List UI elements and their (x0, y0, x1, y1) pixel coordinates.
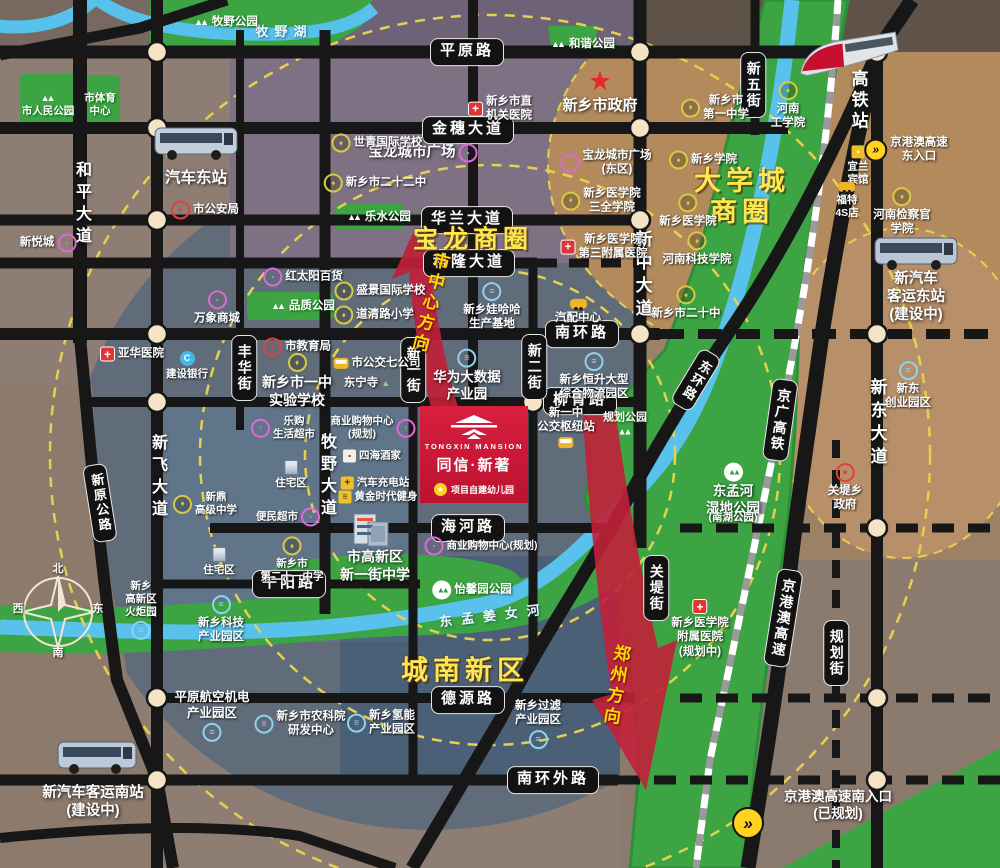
poi-xinxiang-college-text: 新乡学院 (691, 153, 737, 167)
poi-expwy-east-entrance-text: 京港澳高速 东入口 (890, 136, 948, 165)
shop-icon: ▪ (301, 508, 320, 527)
poi-bus7-company-text: 市公交七公司 (352, 356, 421, 370)
poi-no3-hospital: +新乡医学院 第三附属医院 (561, 233, 648, 262)
park-renmin: ▲▲市人民公园 (22, 94, 75, 118)
poi-bianmin-market-text: 便民超市 (256, 510, 298, 523)
poi-huoju-park: ≡新乡 高新区 火炬园 (125, 580, 157, 640)
poi-no3-hospital-text: 新乡医学院 第三附属医院 (579, 233, 648, 262)
poi-baolong-east: ▪宝龙城市广场 (东区) (561, 149, 652, 178)
bank-icon: C (180, 351, 195, 366)
ind-icon: ≡ (585, 352, 604, 371)
poi-qipei-center-text: 汽配中心 (555, 311, 601, 325)
poi-no22-middle-text: 新乡市二十二中 (346, 176, 427, 190)
road-deyuanlu: 德源路 (431, 686, 505, 714)
poi-golden-gym-text: 黄金时代健身 (355, 490, 418, 503)
poi-yizhong-shiyan-text: 新乡市一中 实验学校 (262, 374, 332, 409)
poi-yizhong-shiyan: ♦新乡市一中 实验学校 (262, 353, 332, 409)
poi-xinyuecheng-text: 新悦城 (20, 236, 55, 250)
poi-nongkeyuan-text: 新乡市农科院 研发中心 (277, 710, 346, 739)
poi-yahua-hospital: +亚华医院 (100, 347, 164, 362)
poi-jianshe-bank: C建设银行 (166, 351, 208, 381)
poi-bus7-company: 市公交七公司 (334, 356, 421, 370)
poi-jiguan-hospital: +新乡市直 机关医院 (468, 95, 532, 124)
road-fenghua-st: 丰华街 (231, 335, 257, 401)
gov-icon: ★ (171, 201, 190, 220)
poi-zhuzhai-b: 住宅区 (203, 547, 235, 577)
poi-sihai-restaurant-text: 四海酒家 (359, 449, 401, 462)
school-icon: ♦ (679, 193, 698, 212)
road-xiner-st-text: 新二街 (521, 334, 547, 400)
tree-icon: ▲▲ (551, 40, 566, 49)
station-keyun-east-text: 新汽车 客运东站 (建设中) (887, 270, 945, 324)
school-icon: ♦ (677, 285, 696, 304)
poi-gonganju-text: 市公安局 (193, 203, 239, 217)
shop-icon: ▪ (251, 419, 270, 438)
shop-icon: ▪ (561, 154, 580, 173)
hotel-icon: ▪ (852, 145, 865, 158)
poi-no20-middle-text: 新乡市二十中 (652, 306, 721, 320)
hosp-icon: + (561, 240, 576, 255)
poi-yixueyuan: ♦新乡医学院 (659, 193, 717, 228)
dir-zhengzhou-text: 郑州方向 (598, 643, 632, 729)
tree-icon: ▲▲ (271, 302, 286, 311)
school-icon: ♦ (332, 134, 351, 153)
poi-guandi-gov-text: 关堤乡 政府 (828, 484, 863, 513)
road-xinfei-ave-text: 新飞大道 (147, 434, 167, 522)
poi-sanquan-college: ♦新乡医学院 三全学院 (561, 187, 641, 216)
station-qiche-east-text: 汽车东站 (165, 168, 227, 187)
poi-pingyuan-aero-text: 平原航空机电 产业园区 (174, 690, 249, 721)
road-donghuanlu-text: 东环路 (669, 347, 722, 413)
poi-sanquan-college-text: 新乡医学院 三全学院 (583, 187, 641, 216)
shop-icon: ▪ (397, 419, 416, 438)
poi-expwy-east-entrance: »京港澳高速 东入口 (864, 136, 948, 165)
poi-yixueyuan-text: 新乡医学院 (659, 214, 717, 228)
bld-icon (212, 547, 226, 562)
school-icon: ♦ (669, 151, 688, 170)
poi-shizhengfu: ★新乡市政府 (562, 68, 637, 116)
school-icon: ♦ (681, 99, 700, 118)
station-qiche-east: 汽车东站 (165, 168, 227, 187)
poi-wanxiang-mall: ▪万象商城 (194, 290, 240, 325)
rail-jingguang-hsr-text: 京广高铁 (762, 378, 799, 463)
poi-shizhengfu-text: 新乡市政府 (562, 97, 637, 116)
park-dongmenghe: ▲▲东孟河 湿地公园 (706, 463, 760, 518)
road-xinyuan-hwy-text: 新原公路 (82, 463, 118, 544)
poi-jianchaguan-college: ♦河南检察官 学院 (873, 187, 931, 237)
park-leshui-text: 乐水公园 (365, 210, 411, 224)
poi-wahaha: ≡新乡娃哈哈 生产基地 (463, 282, 521, 332)
poi-golden-gym: ≡黄金时代健身 (339, 490, 418, 503)
poi-shangye-center-plan-text: 商业购物中心 (规划) (331, 415, 394, 441)
park-yixinyuan: ▲▲怡馨园公园 (432, 581, 512, 600)
poi-hengsheng-logistics-text: 新乡恒升大型 综合物流园区 (560, 373, 629, 402)
poi-no1-middle-text: 新乡市 第一中学 (703, 94, 749, 123)
compass-north-text: 北 (53, 563, 64, 577)
compass-east-text: 东 (93, 603, 104, 617)
dir-city-center-text: 市中心方向 (406, 249, 452, 356)
ind-icon: ≡ (899, 361, 918, 380)
poi-daoqinglu-school-text: 道清路小学 (356, 308, 414, 322)
area-chengnan-text: 城南新区 (401, 655, 529, 686)
poi-wahaha-text: 新乡娃哈哈 生产基地 (463, 303, 521, 332)
river-dongmengjiangnv: 东孟姜女河 (438, 601, 549, 631)
poi-xinyizhong-hub-text: 新一中 公交枢纽站 (537, 406, 595, 435)
river-muye-lake: 牧野湖 (255, 24, 312, 40)
road-guihua-st: 规划街 (823, 620, 849, 686)
project-name-cn: 同信·新著 (437, 454, 512, 475)
road-nanhuanwailu: 南环外路 (507, 766, 599, 794)
poi-shengjing-school: ♦盛景国际学校 (335, 282, 426, 301)
road-xiner-st: 新二街 (521, 334, 547, 400)
treec-icon: ▲▲ (724, 463, 743, 482)
park-tiyu-center: 市体育 中心 (84, 92, 116, 118)
project-kindergarten-row: ★ 项目自建幼儿园 (434, 483, 514, 496)
star-icon: ★ (588, 68, 612, 95)
park-guihua-text: 规划公园 (603, 412, 647, 426)
hosp-icon: + (693, 599, 708, 614)
poi-xinyuecheng: ▪新悦城 (20, 234, 77, 253)
school-icon: ♦ (283, 536, 302, 555)
poi-legou-market: ▪乐购 生活超市 (251, 415, 315, 441)
poi-jiguan-hospital-text: 新乡市直 机关医院 (486, 95, 532, 124)
park-dongmenghe-sub-text: (南湖公园) (709, 511, 758, 524)
poi-xinding-school: ♦新鼎 高级中学 (173, 491, 237, 517)
treec-icon: ▲▲ (432, 581, 451, 600)
shop-icon: ▪ (425, 537, 444, 556)
tree-icon: ▲▲ (194, 18, 209, 27)
park-hexie-text: 和谐公园 (569, 37, 615, 51)
poi-xinxiang-college: ♦新乡学院 (669, 151, 737, 170)
park-pinzhi-text: 品质公园 (289, 299, 335, 313)
ind-icon: ≡ (212, 595, 231, 614)
temple-icon: ▲ (381, 379, 390, 388)
poi-charging-station: +汽车充电站 (341, 476, 410, 489)
poi-sihai-restaurant: ▪四海酒家 (343, 449, 401, 462)
tree-icon: ▲▲ (41, 94, 56, 103)
road-jinggangao-expwy: 京港澳高速 (763, 568, 804, 669)
poi-pingyuan-aero: ≡平原航空机电 产业园区 (174, 690, 249, 742)
car-icon (570, 299, 587, 309)
hosp-icon: + (468, 102, 483, 117)
bus-icon (334, 358, 349, 369)
river-muye-lake-text: 牧野湖 (255, 24, 312, 40)
poi-baolong-east-text: 宝龙城市广场 (东区) (583, 149, 652, 178)
compass-west-text: 西 (13, 603, 24, 617)
road-deyuanlu-text: 德源路 (431, 686, 505, 714)
poi-xinding-school-text: 新鼎 高级中学 (195, 491, 237, 517)
school-icon: ♦ (561, 192, 580, 211)
dir-zhengzhou: 郑州方向 (598, 643, 632, 729)
project-logo-icon (443, 414, 505, 440)
poi-jianshe-bank-text: 建设银行 (166, 368, 208, 381)
station-keyun-east: 新汽车 客运东站 (建设中) (887, 270, 945, 324)
gov-icon: ★ (836, 463, 855, 482)
poi-qingneng-park-text: 新乡氢能 产业园区 (369, 709, 415, 738)
poi-zhuzhai-b-text: 住宅区 (203, 564, 235, 577)
poi-huawei-bigdata: ≡华为大数据 产业园 (433, 349, 501, 404)
poi-keji-park-text: 新乡科技 产业园区 (198, 616, 244, 645)
poi-keji-college-text: 河南科技学院 (663, 252, 732, 266)
poi-zhuzhai-a: 住宅区 (275, 460, 307, 490)
park-yixinyuan-text: 怡馨园公园 (454, 583, 512, 597)
ind-icon: ≡ (458, 349, 477, 368)
poi-keji-park: ≡新乡科技 产业园区 (198, 595, 244, 645)
poi-keji-college: ♦河南科技学院 (663, 231, 732, 266)
poi-xinyizhong-hub: 新一中 公交枢纽站 (537, 406, 595, 448)
poi-ford-4s-text: 福特 4S店 (835, 194, 858, 220)
poi-shangye-haihe-text: 商业购物中心(规划) (447, 539, 538, 552)
ind-icon: ≡ (202, 723, 221, 742)
road-donghuanlu: 东环路 (669, 347, 722, 413)
tree-icon: ▲▲ (347, 213, 362, 222)
poi-no21-middle-text: 新乡市 第二十一中学 (261, 557, 324, 583)
icon-expwy-south: » (732, 807, 764, 839)
poi-expwy-south-entrance-text: 京港澳高速南入口 (已规划) (784, 789, 892, 823)
road-guandi-st-text: 关堤街 (643, 555, 669, 621)
poi-guolv-park: ≡新乡过滤 产业园区 (515, 699, 561, 749)
park-leshui: ▲▲乐水公园 (347, 210, 411, 224)
poi-yahua-hospital-text: 亚华医院 (118, 347, 164, 361)
area-chengnan: 城南新区 (401, 655, 529, 686)
poi-guolv-park-text: 新乡过滤 产业园区 (515, 699, 561, 728)
poi-hongtaiyang: ▪红太阳百货 (263, 268, 343, 287)
ind-icon: ≡ (529, 730, 548, 749)
poi-henan-gongxueyuan: ♦河南 工学院 (771, 81, 806, 131)
road-xinyuan-hwy: 新原公路 (82, 463, 118, 544)
car-icon (839, 182, 856, 192)
poi-shangye-haihe: ▪商业购物中心(规划) (425, 537, 538, 556)
poi-fushu-hospital: +新乡医学院 附属医院 (规划中) (671, 599, 729, 659)
poi-huoju-park-text: 新乡 高新区 火炬园 (125, 580, 157, 619)
road-nanhuanwailu-text: 南环外路 (507, 766, 599, 794)
compass-east: 东 (93, 603, 104, 617)
park-dongmenghe-sub: (南湖公园) (709, 511, 758, 524)
ind-icon: ≡ (347, 714, 366, 733)
project-card: TONGXIN MANSION 同信·新著 ★ 项目自建幼儿园 (420, 406, 528, 503)
park-muye-text: 牧野公园 (212, 15, 258, 29)
poi-dongningsi-text: 东宁寺 (344, 376, 379, 390)
hosp-icon: + (100, 347, 115, 362)
park-hexie: ▲▲和谐公园 (551, 37, 615, 51)
ind-icon: ≡ (255, 715, 274, 734)
shop-icon: ▪ (263, 268, 282, 287)
station-gaotie: 高铁站 (847, 70, 868, 133)
poi-guandi-gov: ★关堤乡 政府 (828, 463, 863, 513)
road-fenghua-st-text: 丰华街 (231, 335, 257, 401)
road-pingyuanlu: 平原路 (430, 38, 504, 66)
tree-icon: ▲▲ (618, 427, 633, 436)
poi-no20-middle: ♦新乡市二十中 (652, 285, 721, 320)
poi-legou-market-text: 乐购 生活超市 (273, 415, 315, 441)
poi-zhuzhai-a-text: 住宅区 (275, 477, 307, 490)
poi-shiqing-school: ♦世青国际学校 (332, 134, 423, 153)
kindergarten-icon: ★ (434, 483, 447, 496)
charge-icon: + (341, 477, 354, 490)
bus-icon (559, 437, 574, 448)
road-pingyuanlu-text: 平原路 (430, 38, 504, 66)
park-renmin-text: 市人民公园 (22, 105, 75, 118)
ind-icon: ≡ (483, 282, 502, 301)
poi-wanxiang-mall-text: 万象商城 (194, 311, 240, 325)
school-icon: ♦ (335, 282, 354, 301)
poi-shengjing-school-text: 盛景国际学校 (357, 284, 426, 298)
project-name-en: TONGXIN MANSION (425, 442, 524, 451)
shop-icon: ▪ (459, 144, 478, 163)
road-guihua-st-text: 规划街 (823, 620, 849, 686)
poi-gonganju: ★市公安局 (171, 201, 239, 220)
rest-icon: ▪ (343, 450, 356, 463)
map-canvas: TONGXIN MANSION 同信·新著 ★ 项目自建幼儿园 平原路金穗大道华… (0, 0, 1000, 868)
school-icon: ♦ (893, 187, 912, 206)
school-icon: ♦ (688, 231, 707, 250)
school-icon: ♦ (779, 81, 798, 100)
poi-xindong-startup-park: ≡新东 创业园区 (885, 361, 931, 411)
dir-city-center: 市中心方向 (406, 249, 452, 356)
poi-huawei-bigdata-text: 华为大数据 产业园 (433, 370, 501, 404)
hwbig-icon: » (732, 807, 764, 839)
station-keyun-south-text: 新汽车客运南站 (建设中) (42, 784, 144, 820)
poi-shiqing-school-text: 世青国际学校 (354, 136, 423, 150)
poi-daoqinglu-school: ♦道清路小学 (334, 306, 414, 325)
poi-xinyijie-middle: 市高新区 新一街中学 (340, 549, 410, 584)
school-icon: ♦ (334, 306, 353, 325)
road-jinggangao-expwy-text: 京港澳高速 (763, 568, 804, 669)
poi-xinyijie-middle-text: 市高新区 新一街中学 (340, 549, 410, 584)
park-tiyu-center-text: 市体育 中心 (84, 92, 116, 118)
poi-bianmin-market: ▪便民超市 (256, 508, 320, 527)
poi-ford-4s: 福特 4S店 (835, 182, 858, 220)
poi-no1-middle: ♦新乡市 第一中学 (681, 94, 749, 123)
poi-xindong-startup-park-text: 新东 创业园区 (885, 382, 931, 411)
poi-qipei-center: 汽配中心 (555, 299, 601, 325)
road-xinfei-ave: 新飞大道 (147, 434, 167, 522)
school-icon: ♦ (173, 495, 192, 514)
hw-icon: » (864, 139, 887, 162)
compass-south-text: 南 (53, 647, 64, 661)
bld-icon (284, 460, 298, 475)
poi-henan-gongxueyuan-text: 河南 工学院 (771, 102, 806, 131)
poi-qingneng-park: ≡新乡氢能 产业园区 (347, 709, 415, 738)
poi-nongkeyuan: ≡新乡市农科院 研发中心 (255, 710, 346, 739)
poi-fushu-hospital-text: 新乡医学院 附属医院 (规划中) (671, 616, 729, 659)
shop-icon: ▪ (57, 234, 76, 253)
station-keyun-south: 新汽车客运南站 (建设中) (42, 784, 144, 820)
river-dongmengjiangnv-text: 东孟姜女河 (438, 601, 549, 631)
school-icon: ♦ (324, 174, 343, 193)
compass-north: 北 (53, 563, 64, 577)
poi-charging-station-text: 汽车充电站 (357, 476, 410, 489)
project-note: 项目自建幼儿园 (451, 483, 514, 496)
compass-south: 南 (53, 647, 64, 661)
compass-west: 西 (13, 603, 24, 617)
station-gaotie-text: 高铁站 (847, 70, 868, 133)
gym-icon: ≡ (339, 491, 352, 504)
ind-icon: ≡ (132, 621, 151, 640)
rail-jingguang-hsr: 京广高铁 (762, 378, 799, 463)
shop-icon: ▪ (208, 290, 227, 309)
poi-no21-middle: ♦新乡市 第二十一中学 (261, 536, 324, 583)
poi-expwy-south-entrance: 京港澳高速南入口 (已规划) (784, 789, 892, 823)
poi-no22-middle: ♦新乡市二十二中 (324, 174, 427, 193)
poi-shangye-center-plan: ▪商业购物中心 (规划) (331, 415, 416, 441)
poi-hengsheng-logistics: ≡新乡恒升大型 综合物流园区 (560, 352, 629, 402)
road-guandi-st: 关堤街 (643, 555, 669, 621)
school-icon: ♦ (288, 353, 307, 372)
poi-jianchaguan-college-text: 河南检察官 学院 (873, 208, 931, 237)
park-pinzhi: ▲▲品质公园 (271, 299, 335, 313)
park-muye: ▲▲牧野公园 (194, 15, 258, 29)
park-guihua: ▲▲规划公园 (603, 412, 647, 437)
poi-dongningsi: ▲东宁寺 (344, 376, 390, 390)
